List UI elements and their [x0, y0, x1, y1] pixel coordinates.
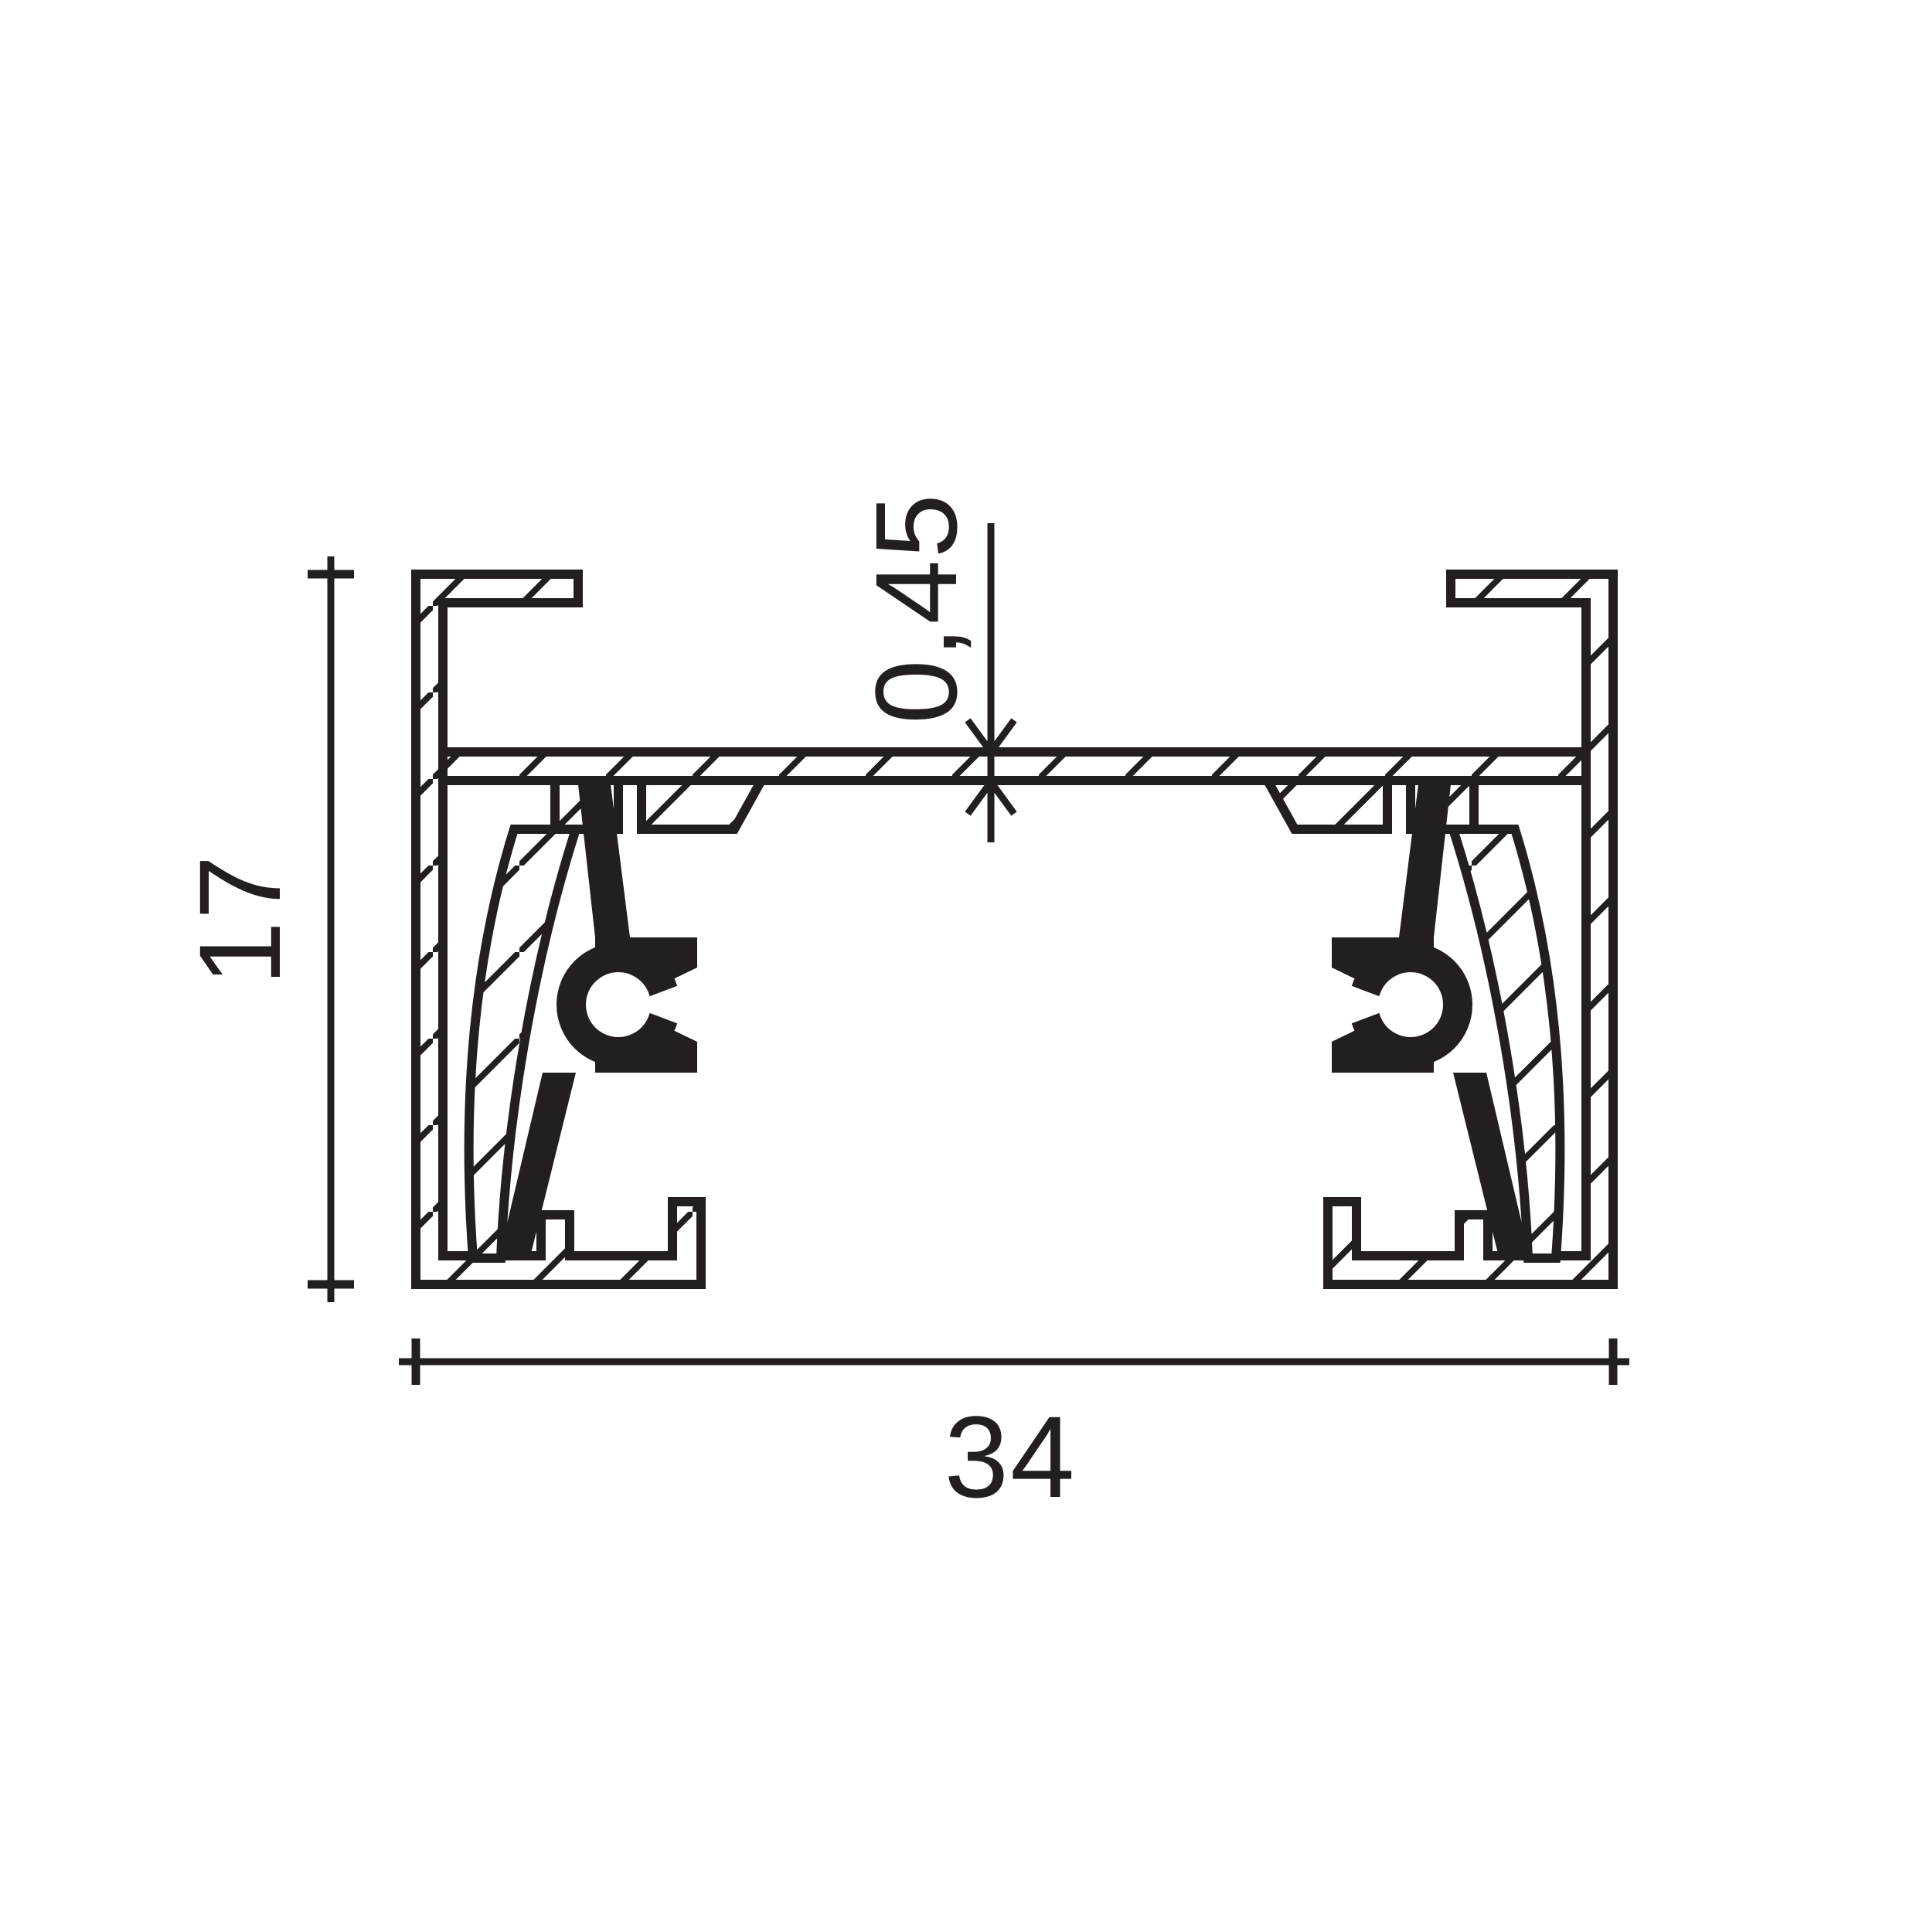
right-conductor-circle: [1378, 972, 1443, 1037]
width-dimension: [399, 1338, 1629, 1385]
web-thickness-label: 0,45: [858, 492, 974, 724]
right-shell: [1328, 574, 1613, 1284]
left-web-rib: [642, 781, 761, 829]
height-dimension: [308, 556, 354, 1302]
right-web-rib: [1268, 781, 1387, 829]
width-label: 34: [945, 1399, 1077, 1515]
left-shell: [416, 574, 701, 1284]
drawing-canvas: 0,45 17 34: [0, 0, 1930, 1932]
height-label: 17: [182, 854, 298, 986]
left-conductor-circle: [586, 972, 651, 1037]
